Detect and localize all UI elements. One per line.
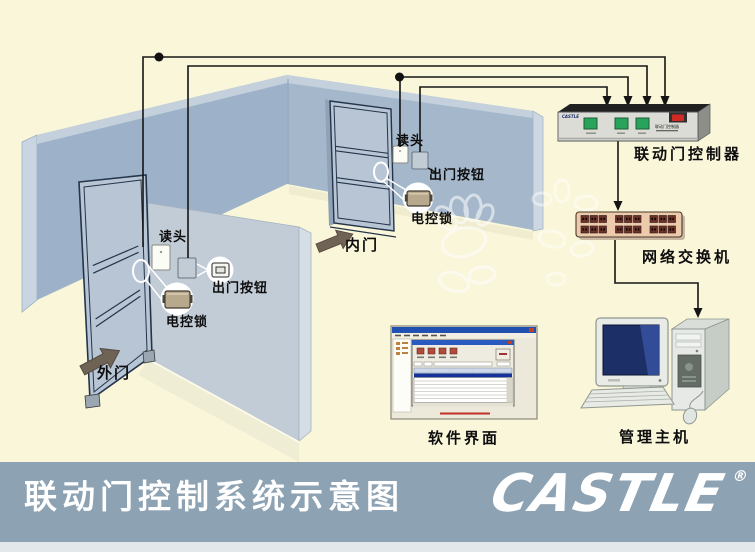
network-switch-device <box>576 212 685 240</box>
marquee-red-text <box>440 413 490 415</box>
schematic-canvas: CASTLE 联动门控制器 <box>0 0 755 552</box>
table-selected-row <box>414 374 512 378</box>
dialog-statusbar <box>413 403 513 407</box>
inner-reader-label: 读头 <box>396 130 424 149</box>
outer-door-foot <box>85 394 100 408</box>
inner-exit-button-label: 出门按钮 <box>429 164 485 183</box>
page-title: 联动门控制系统示意图 <box>24 470 404 518</box>
software-label: 软件界面 <box>428 427 500 448</box>
front-wall-endcap <box>299 227 311 441</box>
outer-reader-device <box>152 245 170 270</box>
host-label: 管理主机 <box>619 426 691 447</box>
controller-button-green <box>636 118 649 129</box>
inner-lock-label: 电控锁 <box>411 208 453 227</box>
table-scrollbar <box>507 378 513 403</box>
wire-junction-dot <box>155 53 164 62</box>
controller-brand-text: CASTLE <box>562 114 579 119</box>
app-titlebar <box>392 327 536 333</box>
title-banner: 联动门控制系统示意图 CASTLE® <box>0 462 755 542</box>
outer-exit-button-device <box>178 258 196 278</box>
management-host-device <box>581 318 729 426</box>
tower-panel <box>678 355 701 387</box>
door-controller-device: CASTLE 联动门控制器 <box>558 104 710 141</box>
controller-power-switch <box>672 115 684 122</box>
right-wall-endcap <box>533 111 543 231</box>
software-window <box>391 326 537 419</box>
controller-button-green <box>615 118 628 129</box>
inner-exit-button-device <box>412 152 428 169</box>
registered-mark: ® <box>731 467 752 485</box>
controller-top <box>558 104 710 112</box>
left-wall-edge <box>22 135 37 312</box>
outer-lock-label: 电控锁 <box>166 311 208 330</box>
app-tree-panel <box>393 339 411 412</box>
network-switch-label: 网络交换机 <box>642 246 732 267</box>
inner-door <box>325 99 396 237</box>
brand-logo: CASTLE® <box>486 464 753 524</box>
inner-door-leaf <box>330 101 394 231</box>
outer-door-label: 外门 <box>97 362 131 383</box>
controller-panel-text: 联动门控制器 <box>655 123 679 129</box>
outer-door-foot <box>143 350 155 363</box>
controller-button-green <box>584 118 597 129</box>
outer-exit-button-label: 出门按钮 <box>212 277 268 296</box>
controller-label: 联动门控制器 <box>634 143 742 164</box>
tower-side <box>705 319 729 410</box>
table-header <box>414 368 512 373</box>
inner-dialog-titlebar <box>412 340 514 345</box>
brand-logo-text: CASTLE <box>486 464 731 524</box>
bottom-strip <box>0 542 755 552</box>
inner-door-label: 内门 <box>345 234 379 255</box>
wire-junction-dot <box>395 73 404 82</box>
outer-reader-label: 读头 <box>159 226 187 245</box>
